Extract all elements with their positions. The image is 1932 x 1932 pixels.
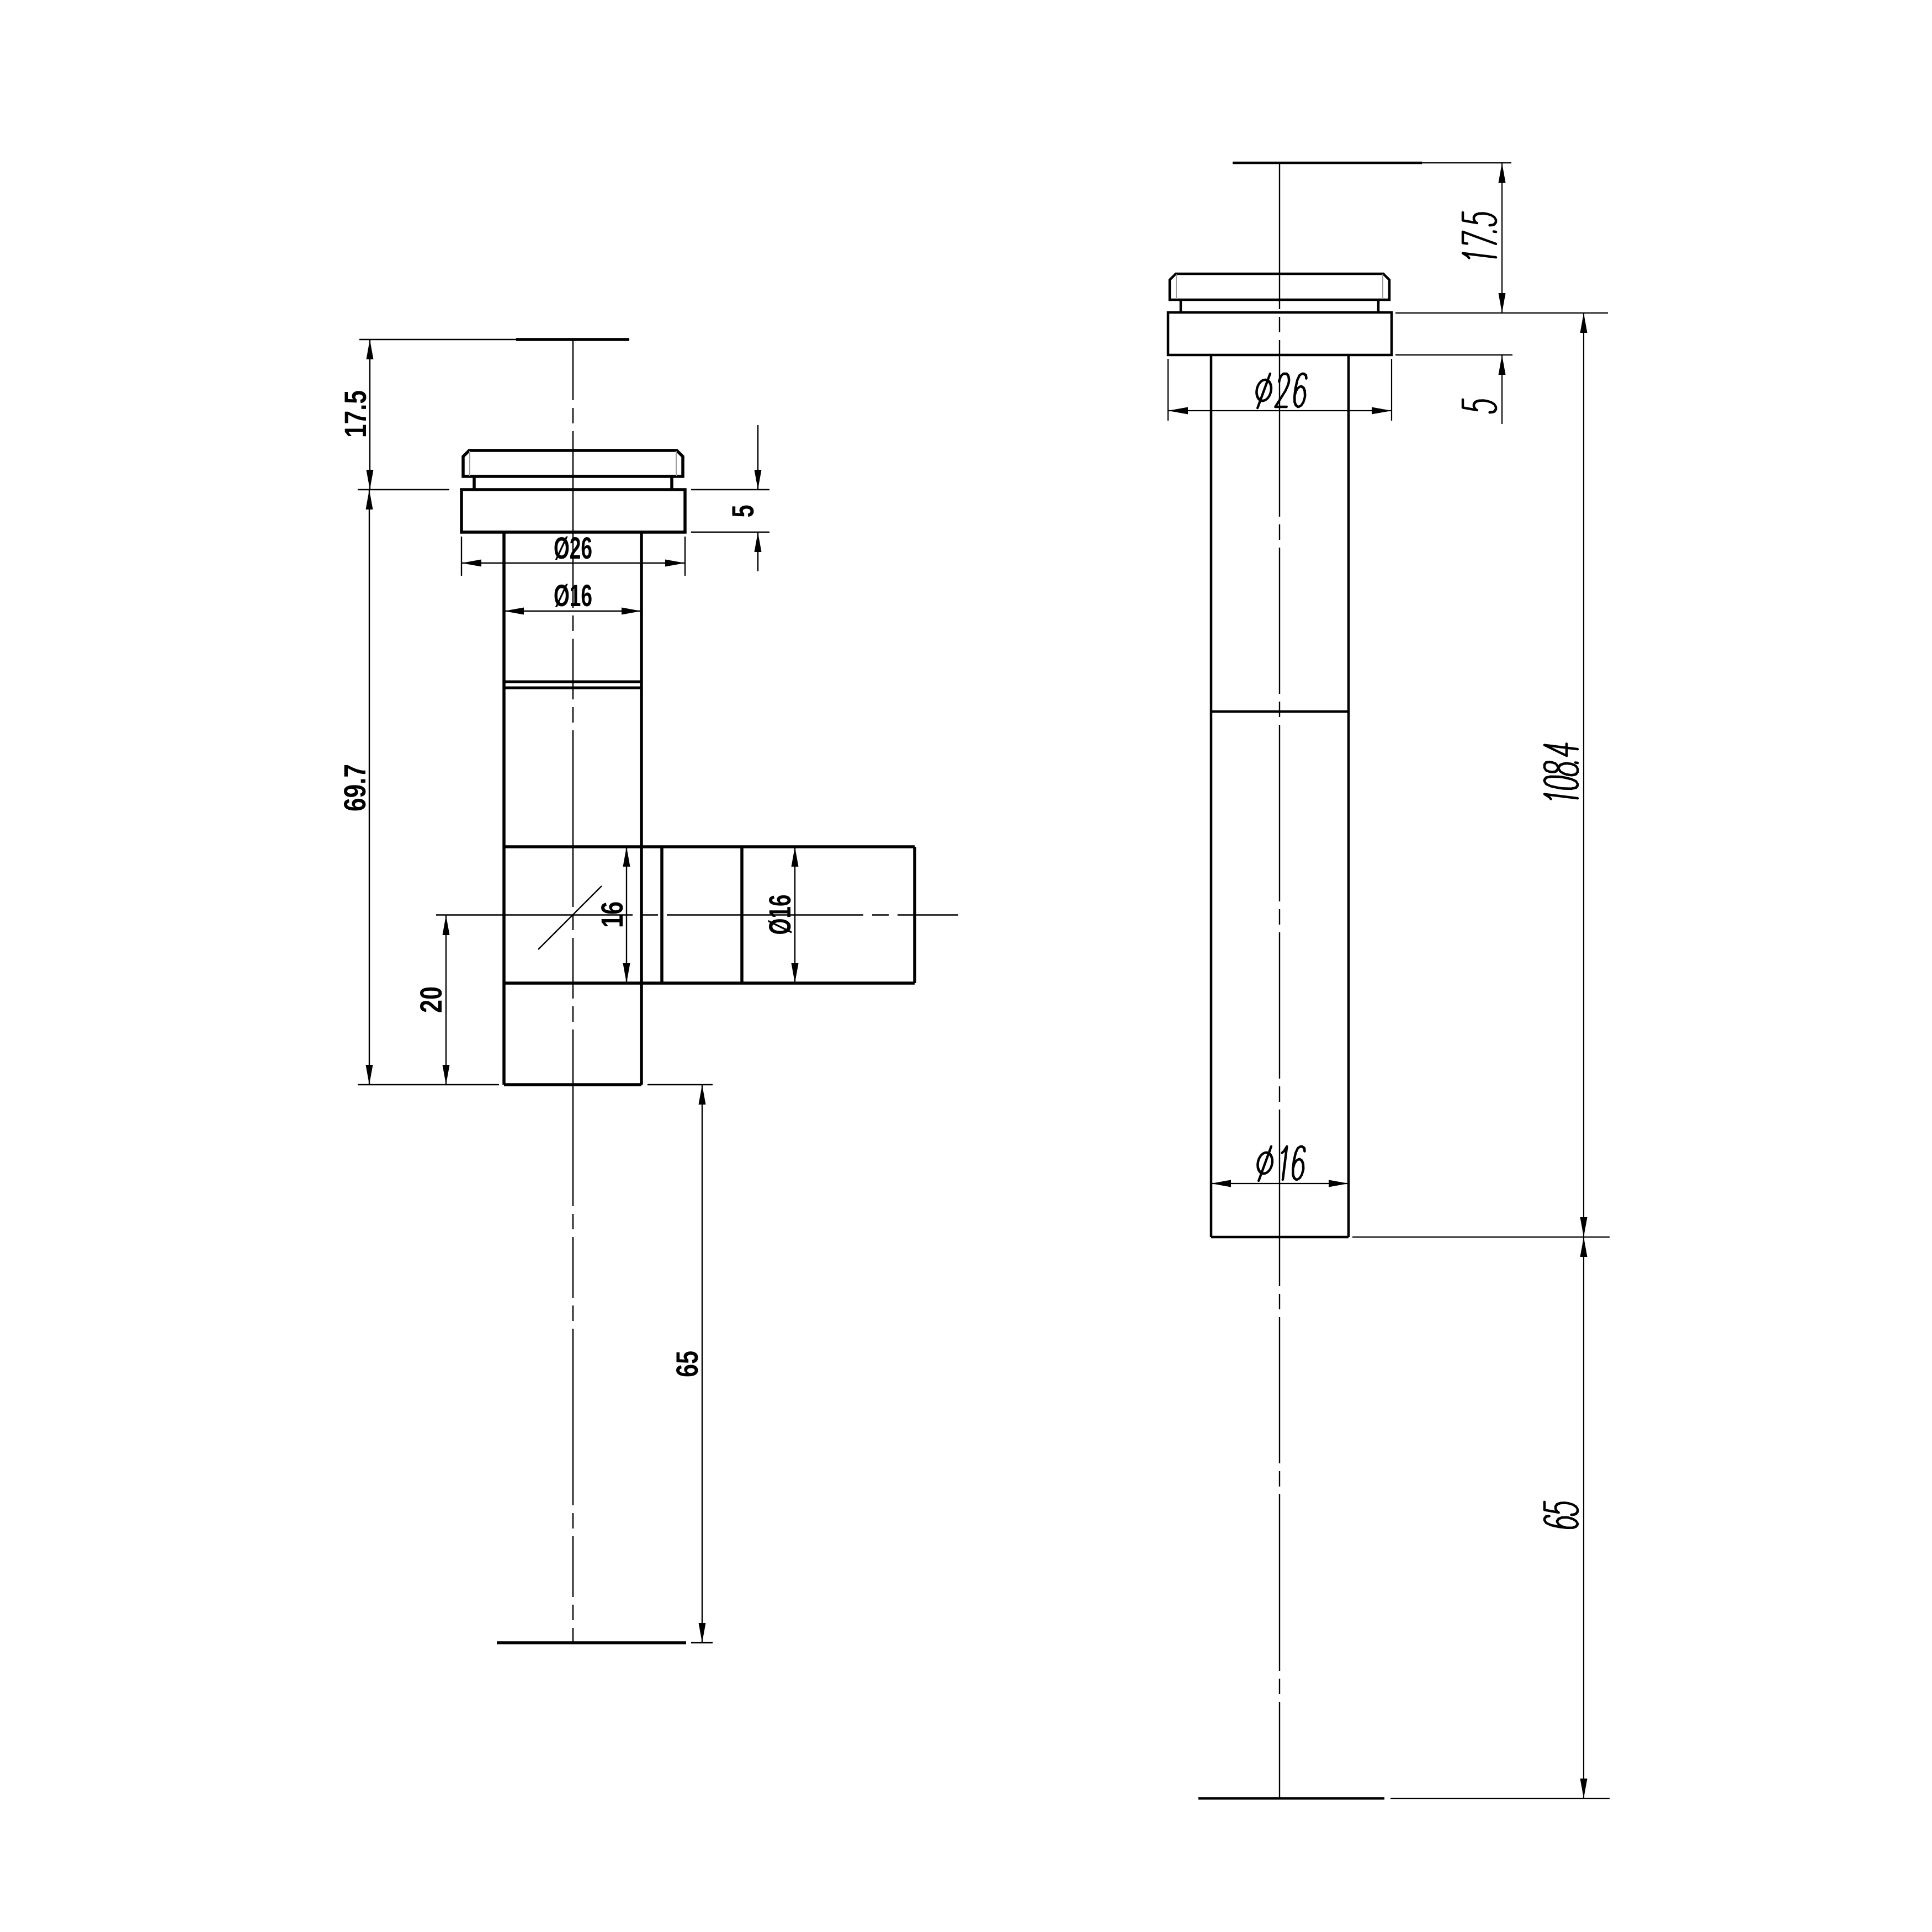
svg-text:Ø16: Ø16 [554,578,592,613]
svg-text:20: 20 [413,986,448,1013]
svg-text:Ø16: Ø16 [762,895,797,935]
svg-text:65: 65 [670,1351,704,1377]
svg-text:69.7: 69.7 [337,764,372,811]
svg-text:5: 5 [725,505,760,518]
svg-text:Ø26: Ø26 [554,530,592,565]
svg-text:16: 16 [595,901,629,928]
svg-text:17.5: 17.5 [338,390,373,438]
